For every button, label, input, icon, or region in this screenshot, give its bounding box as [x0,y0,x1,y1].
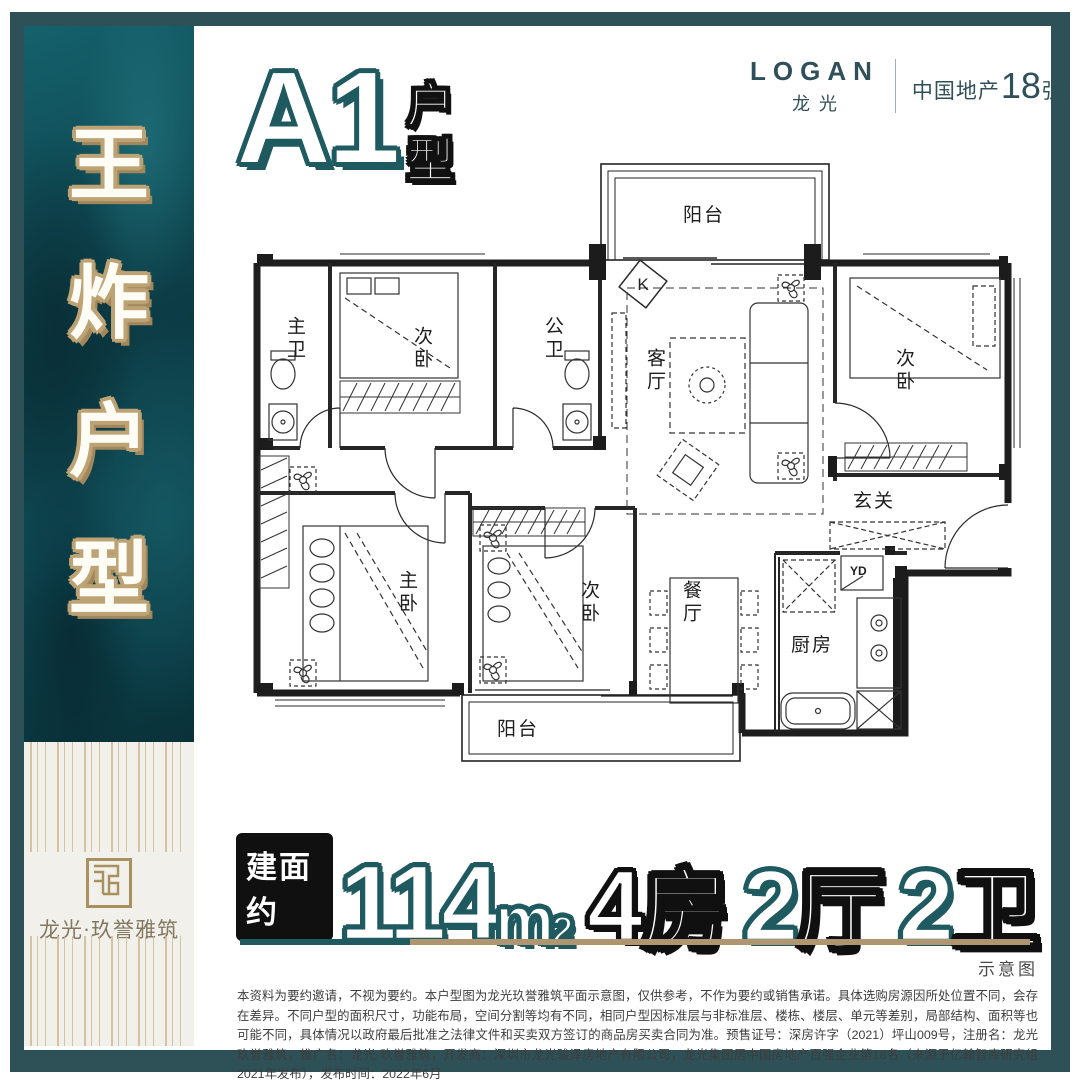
brand-block: LOGAN 龙光 中国地产 18 强 [750,56,1064,116]
room-label-balcony-bottom: 阳台 [497,714,539,741]
sidebar: 王 炸 户 型 龙光·玖誉雅筑 [24,26,194,1046]
seal-glyph-icon [89,861,123,899]
rooms-label: 房 [641,875,729,947]
sidebar-headline-char: 炸 [69,264,149,402]
kitchen-partition [775,553,779,733]
room-label-living: 客厅 [641,348,668,394]
room-label-public-bath: 公卫 [539,316,566,362]
room-label-foyer: 玄关 [853,486,895,513]
floorplan: K 阳台 主卫 次卧 公卫 客厅 次卧 玄关 主卧 次卧 餐厅 厨房 YD 阳台 [245,148,1025,798]
logan-logo-cn: 龙光 [750,90,879,116]
logan-logo: LOGAN 龙光 [750,56,879,116]
room-label-master-bedroom: 主卧 [393,570,420,616]
rank-number: 18 [1001,65,1041,107]
room-label-laundry: YD [850,564,867,578]
halls-number: 2 [743,865,795,947]
room-label-balcony-top: 阳台 [683,200,725,227]
halls-label: 厅 [796,875,884,947]
room-label-bedroom-right: 次卧 [890,348,917,394]
sidebar-headline-char: 型 [69,540,149,678]
kitchen-k-mark: K [619,260,667,308]
room-label-bedroom-top: 次卧 [408,326,435,372]
room-label-bedroom-mid: 次卧 [575,580,602,626]
floorplan-drawing: K [245,148,1025,798]
accent-rule [240,939,1030,945]
sidebar-texture-panel: 王 炸 户 型 [24,26,194,742]
sidebar-headline-char: 王 [69,126,149,264]
area-badge: 建面约 [236,833,333,941]
room-label-kitchen: 厨房 [791,630,833,657]
schematic-note: 示意图 [900,955,1038,980]
logan-logo-en: LOGAN [750,56,879,87]
living-furniture [612,288,823,514]
spec-halls: 2厅 [743,865,885,947]
room-label-master-bath: 主卫 [281,316,308,362]
unit-suffix-char: 户 [407,78,454,133]
brand-rank: 中国地产 18 强 [912,65,1064,107]
baths-label: 卫 [952,875,1040,947]
stripe-pattern [30,936,188,1046]
sidebar-logo-panel: 龙光·玖誉雅筑 [24,742,194,1046]
area-number: 114 [339,860,495,947]
rooms-number: 4 [587,865,639,947]
rank-suffix: 强 [1042,75,1064,105]
rank-prefix: 中国地产 [912,75,1000,105]
sidebar-headline-char: 户 [69,402,149,540]
spec-baths: 2卫 [898,865,1040,947]
disclaimer-text: 本资料为要约邀请，不视为要约。本户型图为龙光玖誉雅筑平面示意图，仅供参考，不作为… [237,987,1038,1080]
project-seal-icon [86,858,132,908]
stripe-pattern [30,742,188,852]
spec-rooms: 4房 [587,865,729,947]
room-label-dining: 餐厅 [677,580,704,626]
wall-chunks [257,244,1008,735]
brand-divider [895,59,896,113]
k-mark-label: K [637,275,649,294]
baths-number: 2 [898,865,950,947]
door-arcs [300,403,1008,568]
poster-page: 王 炸 户 型 龙光·玖誉雅筑 LOGAN 龙光 中国地产 [0,0,1080,1080]
wardrobes [259,381,967,588]
headline-stats: 建面约 114m2 4房 2厅 2卫 [236,833,1040,947]
